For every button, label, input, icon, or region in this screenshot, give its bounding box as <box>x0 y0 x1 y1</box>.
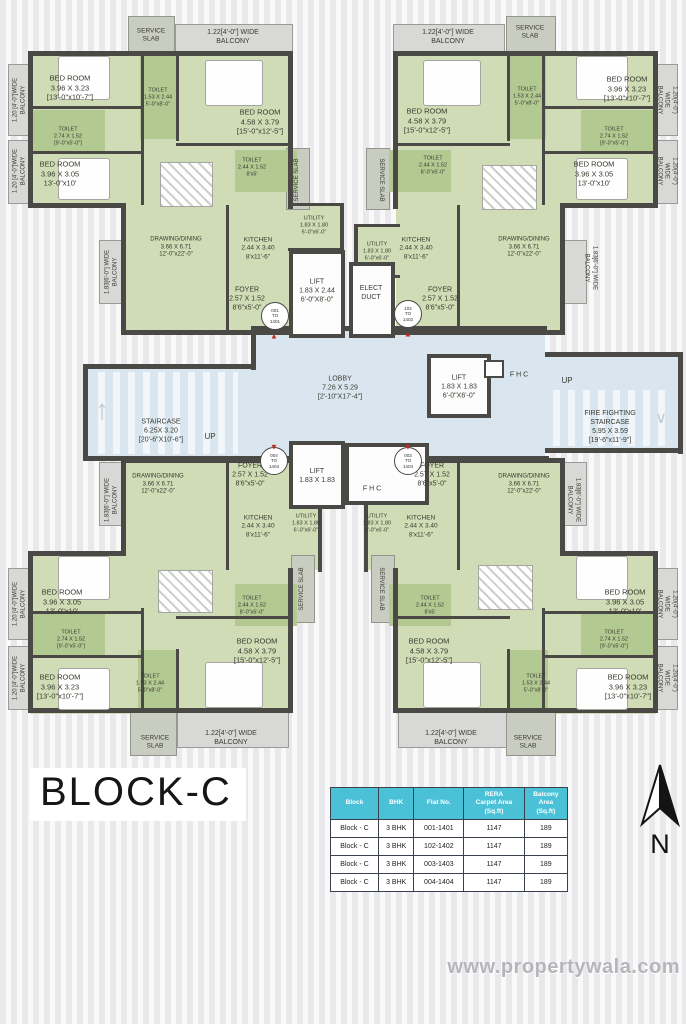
label-balcony: 1.20 [4'-0"]WIDE BALCONY <box>12 149 27 193</box>
wall <box>457 205 460 333</box>
label-balcony: 1.20(4'-0") WIDE BALCONY <box>654 86 677 115</box>
label-bedroom: BED ROOM 3.96 X 3.23 [13'-0"x10'-7"] <box>47 74 93 103</box>
table-cell: 3 BHK <box>378 838 413 856</box>
label-service-slab: SERVICE SLAB <box>514 735 542 752</box>
label-lobby: LOBBY 7.26 X 5.29 [2'-10"X17'-4"] <box>318 376 362 403</box>
wall <box>507 649 510 711</box>
table-cell: 3 BHK <box>378 856 413 874</box>
table-header-cell: BHK <box>378 788 413 820</box>
label-balcony: 1.20 [4'-0"]WIDE BALCONY <box>12 656 27 700</box>
wall <box>28 203 126 208</box>
wall <box>457 460 460 570</box>
wall <box>545 448 682 453</box>
table-header-cell: Flat No. <box>414 788 464 820</box>
wall <box>226 205 229 333</box>
wall <box>560 203 565 335</box>
label-bedroom: BED ROOM 3.96 X 3.05 13'-0"x10' <box>605 588 646 617</box>
flat-area-table-body: Block - C3 BHK001-14011147189Block - C3 … <box>331 820 568 892</box>
label-balcony: 1.20 [4'-0"]WIDE BALCONY <box>12 582 27 626</box>
table-cell: 1147 <box>464 820 525 838</box>
label-lift: LIFT 1.83 X 1.83 6'-0"X6'-0" <box>441 375 477 402</box>
label-balcony: 1.20 [4'-0"]WIDE BALCONY <box>12 78 27 122</box>
wall <box>544 151 656 154</box>
label-utility: UTILITY 1.83 X 1.80 6'-0"x6'-0" <box>363 241 391 262</box>
label-kitchen: KITCHEN 2.44 X 3.40 8'x11'-6" <box>399 237 432 262</box>
label-fhc: F H C <box>510 372 528 381</box>
table-cell: 102-1402 <box>414 838 464 856</box>
table-cell: 003-1403 <box>414 856 464 874</box>
label-balcony: 1.20(4'-0") WIDE BALCONY <box>654 664 677 693</box>
entry-arrow-icon: ▼ <box>404 443 412 452</box>
label-toilet: TOILET 1.53 X 2.44 5'-0"x8'-0" <box>522 673 550 694</box>
dining-table-furniture <box>158 570 213 613</box>
wall <box>176 53 179 141</box>
label-kitchen: KITCHEN 2.44 X 3.40 8'x11'-6" <box>404 515 437 540</box>
north-arrow-icon <box>634 762 686 828</box>
label-toilet: TOILET 2.74 X 1.52 [9'-0"x5'-0"] <box>54 126 82 147</box>
label-bedroom: BED ROOM 3.96 X 3.23 [13'-0"x10'-7"] <box>37 673 83 702</box>
label-foyer: FOYER 2.57 X 1.52 8'6"x5'-0" <box>422 287 458 314</box>
floor-plan-page: { "title": {"block_name": "BLOCK-C"}, "c… <box>0 0 686 1024</box>
label-drawing-dining: DRAWING/DINING 3.66 X 6.71 12'-0"x22'-0" <box>498 236 549 259</box>
label-staircase: STAIRCASE 6.25X 3.20 [20'-6"X10'-6"] <box>139 419 183 446</box>
label-balcony: 1.22[4'-0"] WIDE BALCONY <box>207 29 259 47</box>
table-cell: Block - C <box>331 820 379 838</box>
label-toilet: TOILET 2.44 X 1.52 8'x5' <box>416 595 444 616</box>
table-cell: 1147 <box>464 838 525 856</box>
label-drawing-dining: DRAWING/DINING 3.66 X 6.71 12'-0"x22'-0" <box>498 473 549 496</box>
label-toilet: TOILET 1.53 X 2.44 5'-0"x8'-0" <box>136 673 164 694</box>
label-toilet: TOILET 2.74 X 1.52 [9'-0"x5'-0"] <box>57 629 85 650</box>
stair-down-arrow-icon: ∨ <box>655 408 667 428</box>
wall <box>542 53 545 205</box>
wall <box>30 151 142 154</box>
table-row: Block - C3 BHK004-14041147189 <box>331 874 568 892</box>
label-toilet: TOILET 2.74 X 1.52 [9'-0"x5'-0"] <box>600 126 628 147</box>
wall <box>30 655 142 658</box>
wall <box>226 460 229 570</box>
table-cell: Block - C <box>331 874 379 892</box>
label-fire-staircase: FIRE FIGHTING STAIRCASE 5.95 X 3.59 [19'… <box>584 410 635 446</box>
label-up: UP <box>561 376 572 386</box>
label-drawing-dining: DRAWING/DINING 3.66 X 6.71 12'-0"x22'-0" <box>150 236 201 259</box>
label-balcony: 1.22[4'-0"] WIDE BALCONY <box>422 29 474 47</box>
fhc-box <box>484 360 504 378</box>
wall <box>141 608 144 712</box>
wall <box>83 364 88 461</box>
label-service-slab: SERVICE SLAB <box>137 28 165 45</box>
north-compass: N <box>634 762 686 860</box>
table-cell: 1147 <box>464 856 525 874</box>
table-cell: Block - C <box>331 838 379 856</box>
label-lift: LIFT 1.83 X 2.44 6'-0"X8'-0" <box>299 279 335 306</box>
label-balcony: 1.83[6'-0"] WIDE BALCONY <box>104 250 119 294</box>
bed-furniture <box>423 662 481 708</box>
wall <box>251 326 256 370</box>
wall <box>288 203 344 206</box>
table-cell: 189 <box>524 820 567 838</box>
label-balcony: 1.20(4'-0") WIDE BALCONY <box>654 590 677 619</box>
label-utility: UTILITY 1.83 X 1.80 6'-0"x6'-0" <box>292 513 320 534</box>
table-cell: 189 <box>524 838 567 856</box>
dining-table-furniture <box>160 162 213 207</box>
wall <box>141 53 144 205</box>
watermark: www.propertywala.com <box>436 956 680 979</box>
label-toilet: TOILET 2.44 X 1.52 8'-0"x5'-0" <box>238 595 266 616</box>
label-toilet: TOILET 2.44 X 1.52 8'x5' <box>238 157 266 178</box>
wall <box>393 143 510 146</box>
lobby-area <box>253 330 545 458</box>
table-cell: 1147 <box>464 874 525 892</box>
stair-up-arrow-icon: ↑ <box>95 394 109 426</box>
label-service-slab: SERVICE SLAB <box>376 158 384 201</box>
bed-furniture <box>205 662 263 708</box>
label-foyer: FOYER 2.57 X 1.52 8'6"x5'-0" <box>229 287 265 314</box>
label-kitchen: KITCHEN 2.44 X 3.40 8'x11'-6" <box>241 515 274 540</box>
table-cell: 189 <box>524 874 567 892</box>
label-balcony: 1.83[6'-0"] WIDE BALCONY <box>565 478 580 522</box>
table-row: Block - C3 BHK003-14031147189 <box>331 856 568 874</box>
unit-number-102: 102 TO 1402 <box>394 300 422 328</box>
wall <box>507 53 510 141</box>
wall <box>121 203 126 335</box>
label-elect-duct: ELECT DUCT <box>360 285 383 303</box>
wall <box>544 655 656 658</box>
entry-arrow-icon: ▲ <box>270 332 278 341</box>
label-utility: UTILITY 1.83 X 1.80 6'-0"x6'-0" <box>363 513 391 534</box>
label-up: UP <box>204 432 215 442</box>
label-balcony: 1.83[6'-0"] WIDE BALCONY <box>104 478 119 522</box>
label-bedroom: BED ROOM 3.96 X 3.05 13'-0"x10' <box>42 588 83 617</box>
wall <box>176 649 179 711</box>
wall <box>393 568 398 713</box>
label-toilet: TOILET 1.53 X 2.44 5'-0"x8'-0" <box>144 87 172 108</box>
wall <box>560 458 565 555</box>
label-toilet: TOILET 2.44 X 1.52 8'-0"x5'-0" <box>419 155 447 176</box>
wall <box>28 51 33 208</box>
table-cell: 001-1401 <box>414 820 464 838</box>
wall <box>288 568 293 713</box>
label-bedroom: BED ROOM 3.96 X 3.23 [13'-0"x10'-7"] <box>605 673 651 702</box>
label-balcony: 1.83[6'-0"] WIDE BALCONY <box>582 246 597 290</box>
label-service-slab: SERVICE SLAB <box>516 25 544 42</box>
label-utility: UTILITY 1.83 X 1.80 6'-0"x6'-0" <box>300 215 328 236</box>
wall <box>176 143 293 146</box>
wall <box>176 616 293 619</box>
table-header-cell: RERA Carpet Area (Sq.ft) <box>464 788 525 820</box>
label-service-slab: SERVICE SLAB <box>294 158 302 201</box>
north-label: N <box>634 829 686 860</box>
unit-number-001: 001 TO 1401 <box>261 302 289 330</box>
label-toilet: TOILET 1.53 X 2.44 5'-0"x8'-0" <box>513 86 541 107</box>
wall <box>678 352 683 454</box>
table-row: Block - C3 BHK102-14021147189 <box>331 838 568 856</box>
wall <box>560 203 658 208</box>
wall <box>28 551 33 713</box>
table-row: Block - C3 BHK001-14011147189 <box>331 820 568 838</box>
label-balcony: 1.22[4'-0"] WIDE BALCONY <box>205 730 257 748</box>
label-toilet: TOILET 2.74 X 1.52 [9'-0"x5'-0"] <box>600 629 628 650</box>
label-balcony: 1.22[4'-0"] WIDE BALCONY <box>425 730 477 748</box>
dining-table-furniture <box>478 565 533 610</box>
dining-table-furniture <box>482 165 537 210</box>
wall <box>354 224 400 227</box>
wall <box>545 352 682 357</box>
wall <box>340 203 344 251</box>
label-service-slab: SERVICE SLAB <box>141 735 169 752</box>
wall <box>318 498 322 572</box>
entry-arrow-icon: ▲ <box>404 330 412 339</box>
label-service-slab: SERVICE SLAB <box>299 567 307 610</box>
label-bedroom: BED ROOM 4.58 X 3.79 [15'-0"x12'-5"] <box>404 107 450 136</box>
page-title: BLOCK-C <box>30 768 246 821</box>
wall <box>542 608 545 712</box>
label-bedroom: BED ROOM 4.58 X 3.79 [15'-0"x12'-5"] <box>234 637 280 666</box>
wall <box>544 106 656 109</box>
flat-area-table: BlockBHKFlat No.RERA Carpet Area (Sq.ft)… <box>330 787 568 892</box>
label-service-slab: SERVICE SLAB <box>376 567 384 610</box>
label-kitchen: KITCHEN 2.44 X 3.40 8'x11'-6" <box>241 237 274 262</box>
label-lift: LIFT 1.83 X 1.83 <box>299 468 335 486</box>
wall <box>288 51 293 209</box>
wall <box>393 616 510 619</box>
label-bedroom: BED ROOM 4.58 X 3.79 [15'-0"x12'-5"] <box>237 108 283 137</box>
wall <box>121 458 126 555</box>
entry-arrow-icon: ▼ <box>270 443 278 452</box>
wall <box>393 51 398 209</box>
table-cell: Block - C <box>331 856 379 874</box>
label-bedroom: BED ROOM 3.96 X 3.05 13'-0"x10' <box>40 160 81 189</box>
label-bedroom: BED ROOM 4.58 X 3.79 [15'-0"x12'-5"] <box>406 637 452 666</box>
label-bedroom: BED ROOM 3.96 X 3.05 13'-0"x10' <box>574 160 615 189</box>
label-bedroom: BED ROOM 3.96 X 3.23 [13'-0"x10'-7"] <box>604 75 650 104</box>
table-cell: 3 BHK <box>378 874 413 892</box>
table-cell: 189 <box>524 856 567 874</box>
bed-furniture <box>423 60 481 106</box>
label-drawing-dining: DRAWING/DINING 3.66 X 6.71 12'-0"x22'-0" <box>132 473 183 496</box>
wall <box>30 106 142 109</box>
flat-area-table-header: BlockBHKFlat No.RERA Carpet Area (Sq.ft)… <box>331 788 568 820</box>
label-balcony: 1.20(4'-0") WIDE BALCONY <box>654 157 677 186</box>
table-cell: 004-1404 <box>414 874 464 892</box>
label-fhc: F H C <box>363 486 381 495</box>
bed-furniture <box>205 60 263 106</box>
table-cell: 3 BHK <box>378 820 413 838</box>
wall <box>364 498 368 572</box>
wall <box>83 364 255 369</box>
table-header-cell: Block <box>331 788 379 820</box>
table-header-cell: Balcony Area (Sq.ft) <box>524 788 567 820</box>
